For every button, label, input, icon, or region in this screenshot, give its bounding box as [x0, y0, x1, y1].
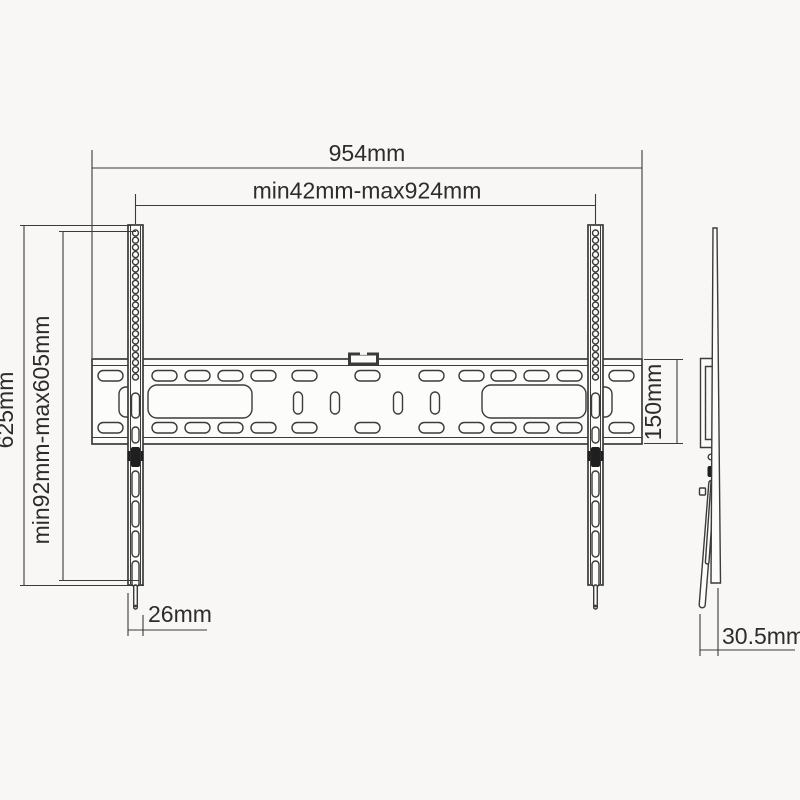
- vesa-height-label: min92mm-max605mm: [28, 316, 54, 545]
- overall-height-label: 625mm: [0, 372, 18, 449]
- mount-depth-label: 30.5mm: [722, 623, 800, 649]
- rail-profile-blade: [711, 228, 721, 583]
- vesa-width-label: min42mm-max924mm: [253, 178, 482, 204]
- tv-mount-drawing: 954mm min42mm-max924mm 625mm min92mm-max…: [0, 0, 800, 800]
- dimension-mount-depth: 30.5mm: [700, 588, 800, 656]
- hook-catch: [700, 488, 706, 495]
- plate-height-label: 150mm: [640, 364, 666, 441]
- left-large-opening: [148, 385, 252, 418]
- rail-width-label: 26mm: [148, 601, 212, 627]
- left-rail: [128, 225, 144, 609]
- dimension-plate-height: 150mm: [640, 360, 683, 444]
- overall-width-label: 954mm: [329, 140, 406, 166]
- level-tab-notch: [360, 352, 367, 355]
- level-tab: [350, 354, 378, 364]
- side-view: [699, 228, 721, 608]
- dimension-overall-width: 954mm: [92, 140, 642, 358]
- front-view: [92, 225, 642, 609]
- right-rail: [588, 225, 604, 609]
- right-large-opening: [482, 385, 586, 418]
- dimension-vesa-width: min42mm-max924mm: [136, 178, 596, 225]
- dimension-rail-width: 26mm: [128, 593, 212, 636]
- wall-plate: [92, 352, 642, 445]
- technical-drawing-canvas: 954mm min42mm-max924mm 625mm min92mm-max…: [0, 0, 800, 800]
